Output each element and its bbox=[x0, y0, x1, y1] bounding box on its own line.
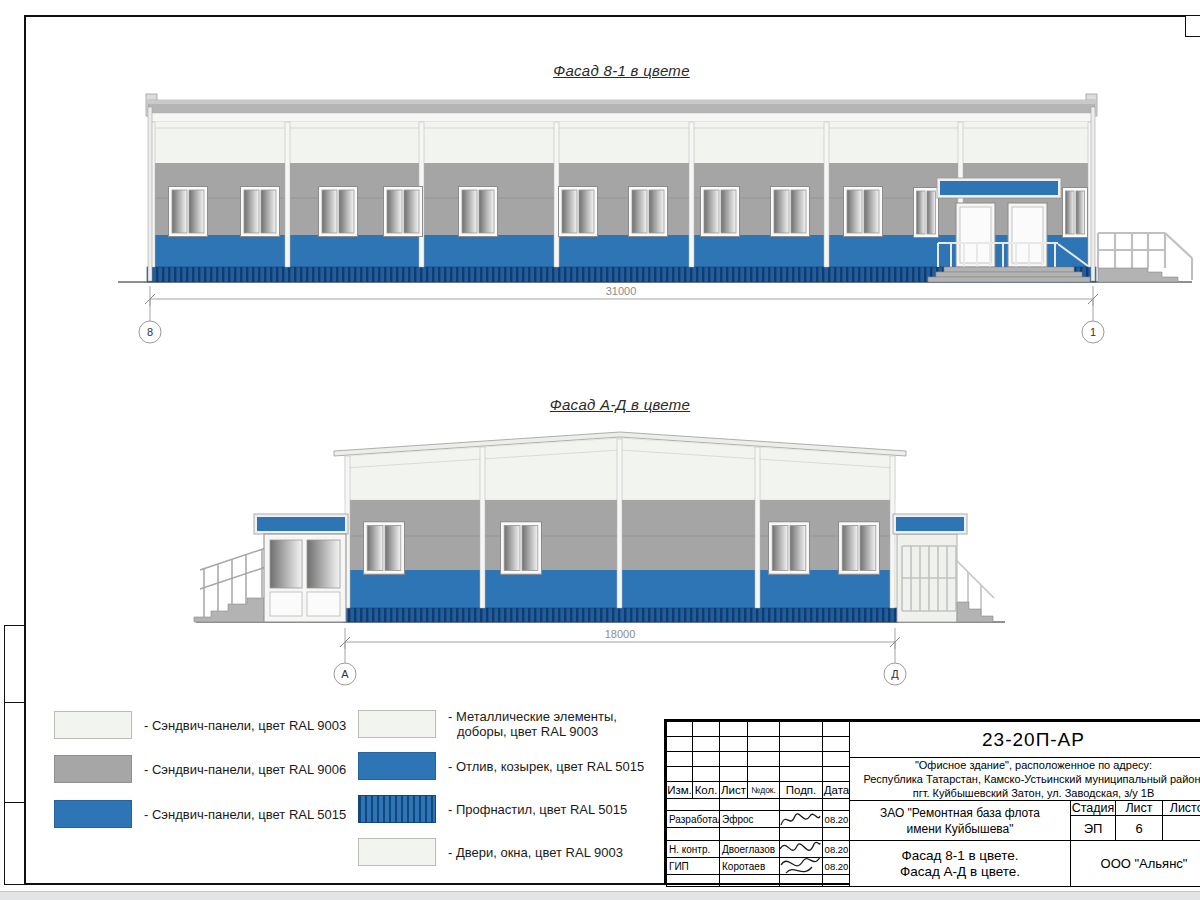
legend-item: - Сэндвич-панели, цвет RAL 5015 bbox=[54, 800, 346, 828]
address-line3: пгт. Куйбышевский Затон, ул. Заводская, … bbox=[863, 786, 1200, 800]
row-ncontr-date: 08.20 bbox=[823, 841, 851, 858]
row-developed-role: Разработал bbox=[667, 811, 720, 828]
col-header-kol: Кол. bbox=[693, 782, 720, 799]
col-header-podp: Подп. bbox=[780, 782, 823, 799]
row-ncontr-role: Н. контр. bbox=[667, 841, 720, 858]
legend-swatch-metal-ral9003 bbox=[358, 710, 436, 738]
facade-8-1-drawing: 31000 8 1 bbox=[118, 94, 1192, 343]
legend-label: - Сэндвич-панели, цвет RAL 5015 bbox=[144, 807, 346, 822]
address-line2: Республика Татарстан, Камско-Устьинский … bbox=[863, 772, 1200, 786]
row-developed-date: 08.20 bbox=[823, 811, 851, 828]
axis-label-8: 8 bbox=[147, 326, 153, 338]
vestibule-canopy bbox=[257, 517, 345, 531]
sheet-header: Лист bbox=[1115, 800, 1163, 816]
stage-value: ЭП bbox=[1070, 815, 1116, 841]
legend-item: - Двери, окна, цвет RAL 9003 bbox=[358, 838, 623, 866]
facade1-dimension-text: 31000 bbox=[606, 285, 637, 297]
facade2-vestibule bbox=[194, 514, 348, 622]
stage-header: Стадия bbox=[1070, 800, 1116, 816]
downpipe bbox=[148, 107, 152, 281]
row-gip-date: 08.20 bbox=[823, 858, 851, 875]
subject-line1: Фасад 8-1 в цвете. bbox=[900, 848, 1020, 864]
row-gip-role: ГИП bbox=[667, 858, 720, 875]
col-header-izm: Изм. bbox=[667, 782, 693, 799]
axis-label-d: Д bbox=[891, 668, 899, 680]
facade-a-d-drawing: 18000 А Д bbox=[194, 432, 1005, 685]
subject-line2: Фасад А-Д в цвете. bbox=[900, 864, 1020, 880]
client-line2: имени Куйбышева" bbox=[880, 821, 1040, 837]
legend-label: - Отлив, козырек, цвет RAL 5015 bbox=[448, 759, 644, 774]
project-address-cell: "Офисное здание", расположенное по адрес… bbox=[849, 757, 1200, 801]
legend-label: - Профнастил, цвет RAL 5015 bbox=[448, 802, 627, 817]
legend-swatch-profnastil bbox=[358, 795, 436, 823]
facade2-right-annex bbox=[893, 514, 994, 622]
client-line1: ЗАО "Ремонтная база флота bbox=[880, 805, 1040, 821]
facade1-right-stair bbox=[1098, 233, 1192, 282]
contractor-cell: ООО "Альянс" bbox=[1070, 840, 1200, 887]
sheets-header: Листов bbox=[1162, 800, 1200, 816]
legend-item: - Металлические элементы,доборы, цвет RA… bbox=[358, 709, 617, 739]
facade2-dimension-text: 18000 bbox=[605, 628, 636, 640]
client-cell: ЗАО "Ремонтная база флота имени Куйбышев… bbox=[849, 800, 1071, 841]
col-header-list: Лист bbox=[720, 782, 748, 799]
col-header-data: Дата bbox=[823, 782, 851, 799]
legend-swatch-otliv-ral5015 bbox=[358, 752, 436, 780]
legend-label: - Металлические элементы,доборы, цвет RA… bbox=[448, 709, 617, 739]
sheet-value: 6 bbox=[1115, 815, 1163, 841]
titleblock-left-grid: Изм. Кол. Лист №док. Подп. Дата Разработ… bbox=[666, 721, 851, 887]
entrance-steps bbox=[928, 267, 1090, 282]
sheet-subject-cell: Фасад 8-1 в цвете. Фасад А-Д в цвете. bbox=[849, 840, 1071, 887]
col-header-ndok: №док. bbox=[748, 782, 780, 799]
sheets-value bbox=[1162, 815, 1200, 841]
annex-canopy bbox=[896, 517, 964, 531]
row-ncontr-name: Двоеглазов bbox=[720, 841, 780, 858]
downpipe bbox=[1091, 107, 1095, 281]
address-line1: "Офисное здание", расположенное по адрес… bbox=[863, 758, 1200, 772]
row-developed-name: Эфрос bbox=[720, 811, 780, 828]
legend-item: - Отлив, козырек, цвет RAL 5015 bbox=[358, 752, 644, 780]
drawing-sheet: Фасад 8-1 в цвете Фасад А-Д в цвете bbox=[0, 0, 1200, 900]
project-code-cell: 23-20П-АР bbox=[849, 721, 1200, 758]
axis-label-a: А bbox=[341, 668, 349, 680]
title-block: Изм. Кол. Лист №док. Подп. Дата Разработ… bbox=[664, 719, 1200, 885]
row-gip-name: Коротаев bbox=[720, 858, 780, 875]
legend-swatch-ral9003 bbox=[54, 711, 132, 739]
legend-swatch-doors-ral9003 bbox=[358, 838, 436, 866]
legend-item: - Профнастил, цвет RAL 5015 bbox=[358, 795, 627, 823]
legend-label: - Сэндвич-панели, цвет RAL 9003 bbox=[144, 718, 346, 733]
project-code: 23-20П-АР bbox=[982, 729, 1085, 751]
legend-label: - Двери, окна, цвет RAL 9003 bbox=[448, 845, 623, 860]
legend-swatch-ral9006 bbox=[54, 755, 132, 783]
axis-label-1: 1 bbox=[1090, 326, 1096, 338]
legend-item: - Сэндвич-панели, цвет RAL 9006 bbox=[54, 755, 346, 783]
legend-label: - Сэндвич-панели, цвет RAL 9006 bbox=[144, 762, 346, 777]
legend-swatch-ral5015 bbox=[54, 800, 132, 828]
legend-item: - Сэндвич-панели, цвет RAL 9003 bbox=[54, 711, 346, 739]
entrance-canopy bbox=[940, 181, 1058, 195]
